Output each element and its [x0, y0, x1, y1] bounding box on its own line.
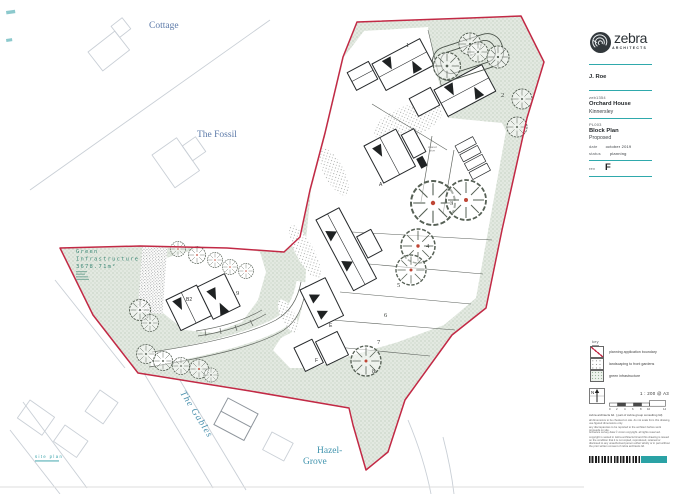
key-item-label: landscaping to front gardens — [609, 362, 654, 366]
scale-tick: 14 — [663, 407, 667, 411]
north-letter: N — [591, 390, 594, 395]
label-the-fossil: The Fossil — [197, 130, 237, 140]
label-drive: drive — [429, 149, 436, 153]
label-green-infra-2: Infrastructure — [76, 257, 139, 263]
brand-logo: zebra ARCHITECTS — [589, 31, 647, 54]
site-plan-drawing: Cottage The Fossil The Gables Hazel- Gro… — [0, 0, 584, 494]
divider — [589, 176, 652, 177]
scale-text: 1 : 200 @ A3 — [640, 391, 669, 396]
note-line-3: ordnance survey data © crown copyright. … — [589, 431, 671, 434]
date-label: date — [589, 144, 598, 149]
label-cottage: Cottage — [149, 21, 179, 31]
neighbour-building-gables — [214, 398, 258, 440]
divider — [589, 64, 652, 65]
rev-label: rev — [589, 166, 595, 171]
plot-3: 3 — [450, 200, 453, 207]
divider — [589, 118, 652, 119]
zebra-fingerprint-icon — [589, 31, 612, 54]
title-block: zebra ARCHITECTS J. Roe zeb1354 Orchard … — [584, 0, 700, 494]
scale-tick: 4 — [624, 407, 626, 411]
key-item-label: green infrastructure — [609, 374, 640, 378]
status-label: status — [589, 151, 601, 156]
label-green-infra-1: Green — [76, 249, 99, 255]
key-item-green-infra: green infrastructure — [590, 370, 640, 382]
label-hazel: Hazel- — [317, 446, 342, 456]
scale-tick: 10 — [647, 407, 651, 411]
label-grove: Grove — [303, 457, 327, 467]
rev-value: F — [605, 162, 611, 173]
block-plan-sheet: Cottage The Fossil The Gables Hazel- Gro… — [0, 0, 700, 494]
label-the-gables: The Gables — [177, 389, 214, 440]
landscaping-swatch — [590, 358, 604, 370]
key-title: key — [592, 339, 599, 346]
copyright-note: copyright is vested in zebra architects … — [589, 436, 671, 448]
plot-5: 5 — [397, 282, 400, 289]
building-f-label: F — [315, 358, 318, 364]
project-name: Orchard House — [589, 101, 631, 107]
label-site-plan: site plan — [35, 454, 63, 459]
status-row: status planning — [589, 151, 627, 156]
project-location: Kinnersley — [589, 109, 613, 115]
plot-1: 1 — [406, 42, 409, 49]
barcode-teal-block — [641, 456, 667, 463]
status-value: planning — [610, 151, 627, 156]
drawing-title: Block Plan — [589, 128, 619, 134]
date-row: date october 2019 — [589, 144, 631, 149]
note-line-1: all dimensions to be checked on site. do… — [589, 419, 671, 425]
project-number: zeb1354 — [589, 95, 606, 100]
scale-tick: 2 — [616, 407, 618, 411]
scale-tick: 6 — [632, 407, 634, 411]
label-green-infra-3: 3678.71m² — [76, 263, 117, 270]
green-infra-swatch — [590, 370, 604, 382]
building-b2-label: B2 — [186, 297, 192, 303]
brand-tagline: ARCHITECTS — [612, 46, 647, 50]
plot-8: 8 — [372, 368, 375, 375]
plot-2: 2 — [501, 92, 504, 99]
north-arrow: N — [589, 388, 605, 404]
divider — [589, 160, 652, 161]
site-plan-underline — [35, 461, 59, 462]
key-item-landscaping: landscaping to front gardens — [590, 358, 654, 370]
date-value: october 2019 — [606, 144, 632, 149]
barcode — [589, 456, 667, 463]
firm-note: zebra architects ltd. ( part of zebra gr… — [589, 413, 671, 417]
key-item-boundary: planning application boundary — [590, 346, 657, 358]
scale-tick: 0 — [609, 407, 611, 411]
scale-tick: 8 — [640, 407, 642, 411]
brand-name: zebra — [614, 31, 647, 45]
drawing-status-line: Proposed — [589, 135, 611, 141]
scan-marks — [6, 10, 15, 42]
boundary-swatch — [590, 346, 604, 358]
drawing-number: PL003 — [589, 122, 602, 127]
barcode-bars — [589, 456, 641, 463]
divider — [589, 90, 652, 91]
client-name: J. Roe — [589, 74, 606, 80]
scale-bar: 0 2 4 6 8 10 14 — [609, 399, 669, 411]
plot-9: 9 — [236, 290, 239, 297]
key-item-label: planning application boundary — [609, 350, 657, 354]
